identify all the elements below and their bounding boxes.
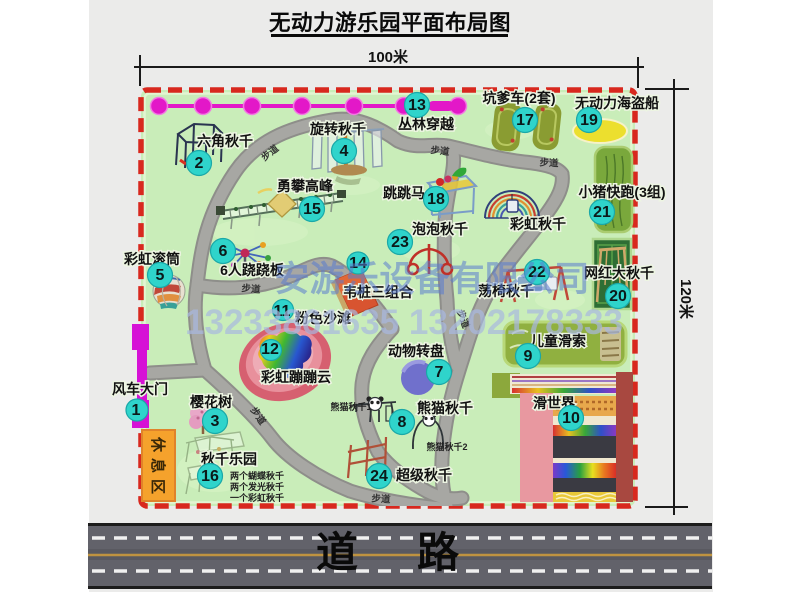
svg-text:12: 12 — [261, 341, 279, 358]
svg-text:24: 24 — [370, 468, 388, 485]
svg-text:步道: 步道 — [539, 157, 559, 170]
svg-text:两个蝴蝶秋千: 两个蝴蝶秋千 — [230, 470, 284, 481]
svg-text:19: 19 — [580, 112, 598, 129]
svg-text:100米: 100米 — [368, 48, 409, 66]
svg-text:21: 21 — [593, 204, 611, 221]
svg-text:动物转盘: 动物转盘 — [388, 343, 444, 359]
svg-text:16: 16 — [201, 468, 219, 485]
svg-text:17: 17 — [516, 112, 534, 129]
svg-text:步道: 步道 — [371, 492, 391, 505]
svg-text:六角秋千: 六角秋千 — [197, 133, 253, 149]
svg-text:彩虹滚筒: 彩虹滚筒 — [123, 251, 180, 267]
svg-text:彩虹秋千: 彩虹秋千 — [509, 216, 566, 232]
svg-text:7: 7 — [435, 364, 444, 381]
svg-text:勇攀高峰: 勇攀高峰 — [277, 178, 334, 194]
svg-text:跳跳马: 跳跳马 — [383, 185, 425, 201]
svg-text:彩虹蹦蹦云: 彩虹蹦蹦云 — [260, 369, 331, 385]
svg-text:9: 9 — [524, 348, 533, 365]
svg-text:休息区: 休息区 — [149, 436, 167, 500]
svg-text:路: 路 — [417, 529, 460, 576]
svg-text:超级秋千: 超级秋千 — [395, 467, 452, 483]
svg-text:两个发光秋千: 两个发光秋千 — [230, 481, 284, 492]
svg-text:13: 13 — [408, 97, 426, 114]
svg-text:丛林穿越: 丛林穿越 — [398, 116, 455, 132]
svg-text:小猪快跑(3组): 小猪快跑(3组) — [578, 184, 665, 200]
svg-text:泡泡秋千: 泡泡秋千 — [412, 221, 468, 237]
svg-text:步道: 步道 — [430, 144, 451, 158]
svg-text:旋转秋千: 旋转秋千 — [309, 121, 366, 137]
svg-text:无动力游乐园平面布局图: 无动力游乐园平面布局图 — [269, 10, 511, 35]
svg-text:3: 3 — [211, 413, 220, 430]
svg-text:熊猫秋千: 熊猫秋千 — [417, 400, 473, 416]
svg-text:8: 8 — [398, 414, 407, 431]
svg-text:120米: 120米 — [677, 279, 695, 320]
svg-text:2: 2 — [195, 155, 204, 172]
svg-text:4: 4 — [340, 143, 349, 160]
svg-text:网红大秋千: 网红大秋千 — [584, 265, 654, 281]
svg-text:樱花树: 樱花树 — [190, 394, 232, 410]
svg-text:熊猫秋千1: 熊猫秋千1 — [330, 401, 371, 412]
svg-text:10: 10 — [562, 410, 580, 427]
svg-text:15: 15 — [303, 201, 321, 218]
svg-text:一个彩虹秋千: 一个彩虹秋千 — [230, 492, 284, 503]
svg-text:坑爹车(2套): 坑爹车(2套) — [482, 90, 555, 106]
svg-text:23: 23 — [391, 234, 409, 251]
svg-text:风车大门: 风车大门 — [112, 381, 168, 397]
svg-text:1: 1 — [132, 402, 141, 419]
svg-text:安游乐设备有限公司: 安游乐设备有限公司 — [274, 260, 589, 299]
svg-text:6: 6 — [219, 243, 228, 260]
svg-text:18: 18 — [427, 191, 445, 208]
svg-text:熊猫秋千2: 熊猫秋千2 — [426, 441, 467, 452]
svg-text:5: 5 — [156, 267, 165, 284]
svg-text:13233861635 13202178333: 13233861635 13202178333 — [185, 303, 623, 342]
svg-text:道: 道 — [316, 529, 358, 576]
svg-text:步道: 步道 — [241, 282, 261, 296]
